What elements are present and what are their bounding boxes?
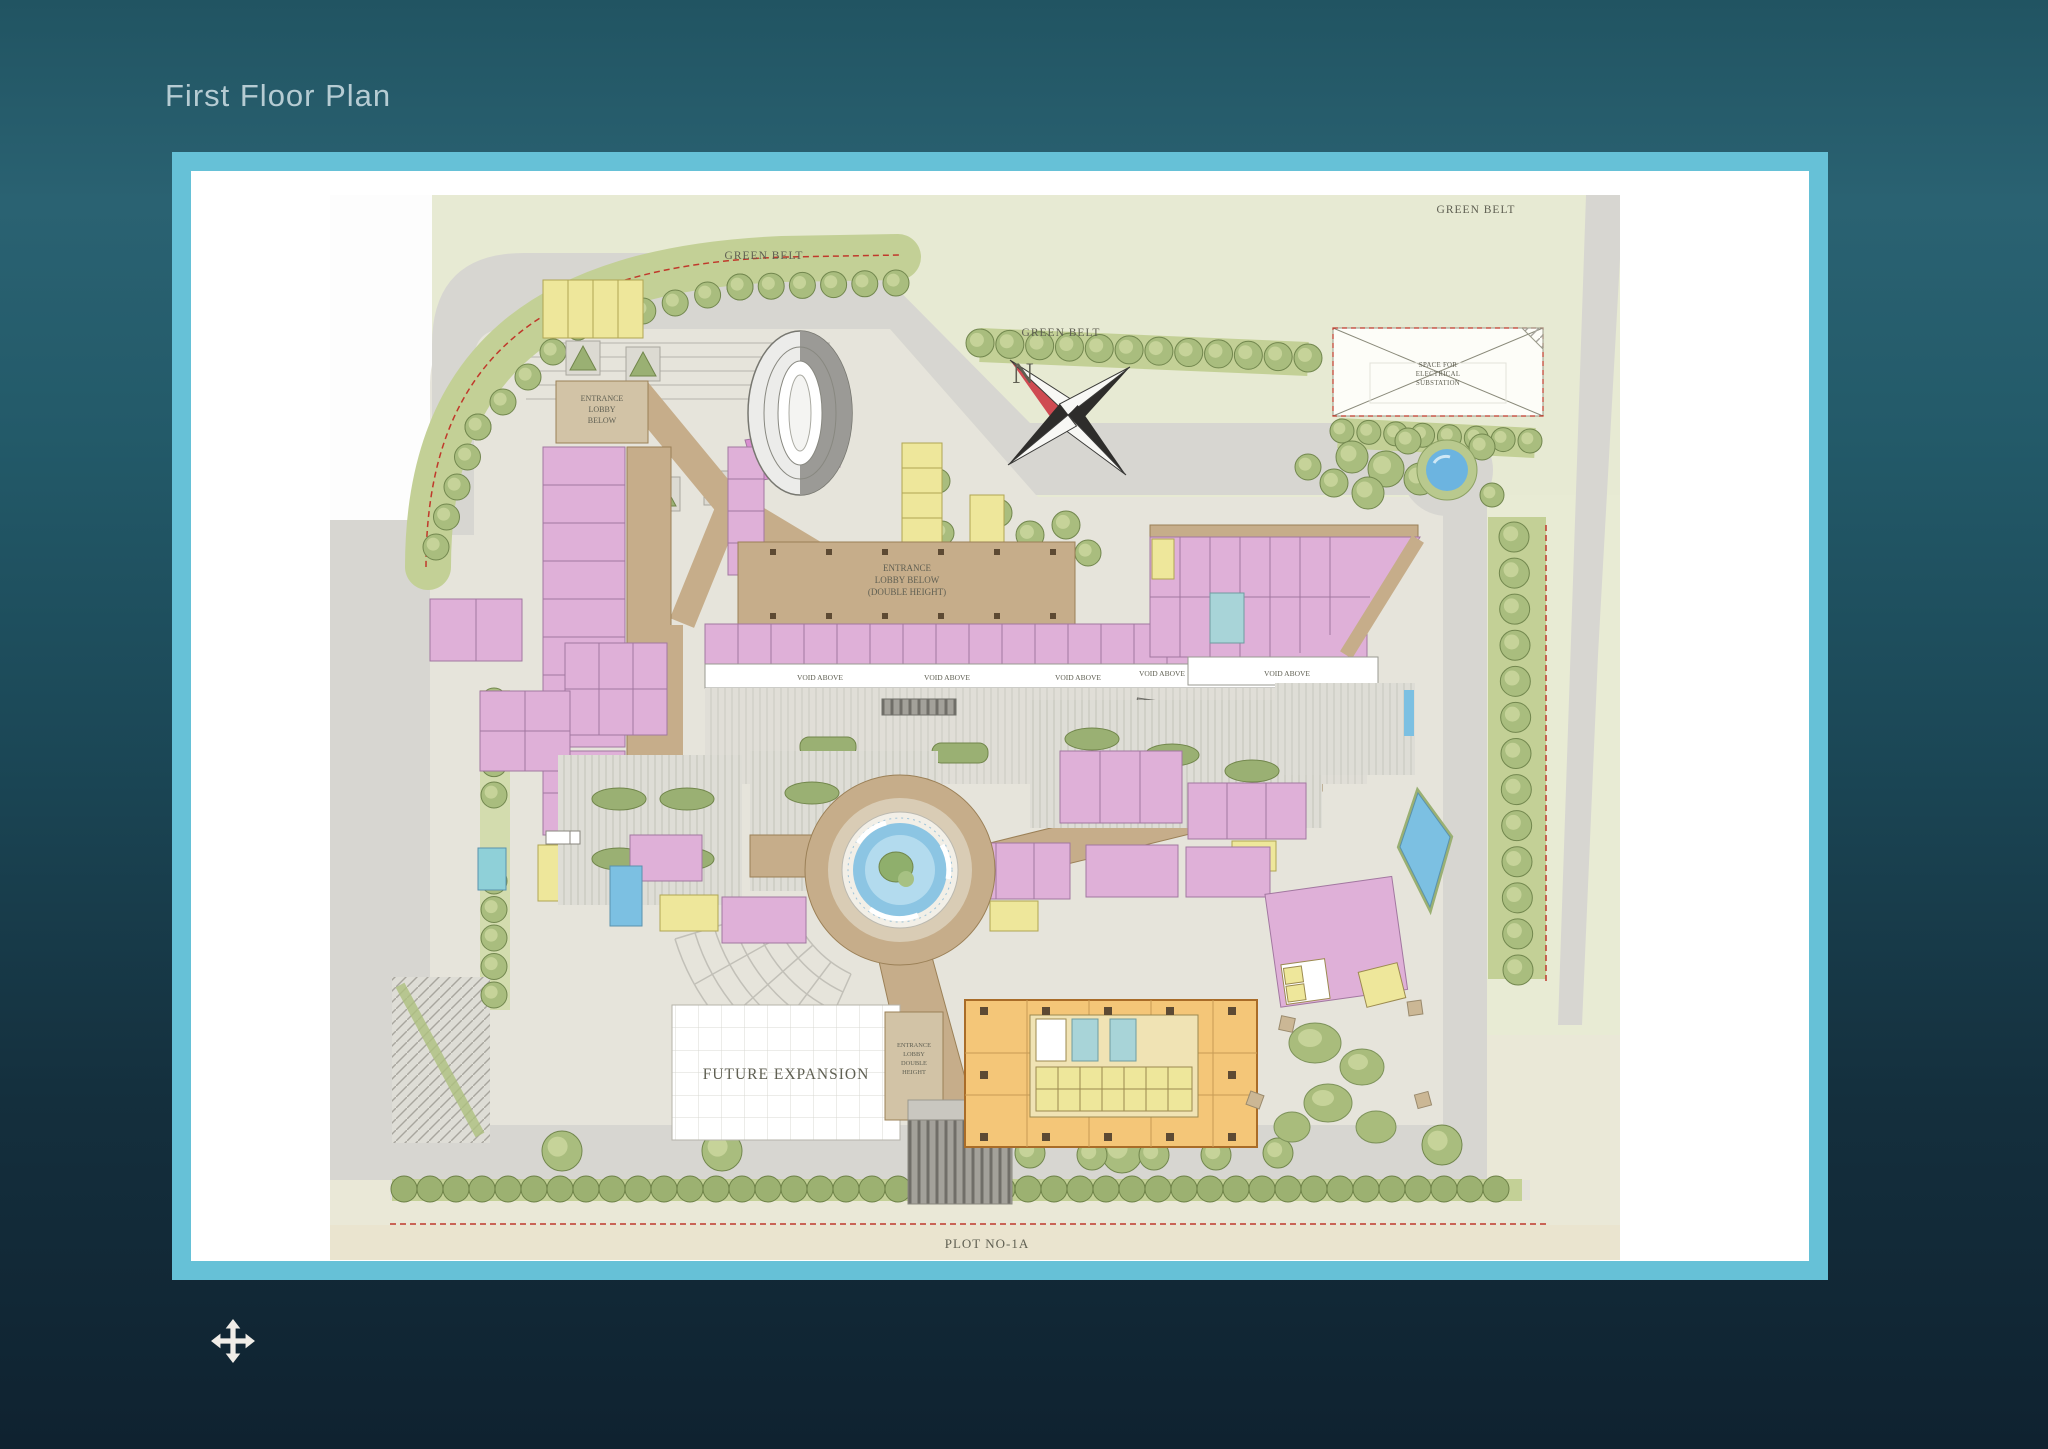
plan-frame: GREEN BELT GREEN BELT GREEN BELT N SPACE… bbox=[172, 152, 1828, 1280]
central-fountain bbox=[805, 775, 995, 965]
future-expansion-label: FUTURE EXPANSION bbox=[703, 1066, 870, 1083]
green-belt-label-left: GREEN BELT bbox=[725, 250, 804, 262]
lobby-tower-label-3: DOUBLE bbox=[901, 1060, 927, 1067]
void-above-label-4: VOID ABOVE bbox=[1139, 669, 1185, 678]
floor-plan-drawing: GREEN BELT GREEN BELT GREEN BELT N SPACE… bbox=[330, 195, 1620, 1260]
north-label: N bbox=[1012, 357, 1034, 390]
void-above-label-1: VOID ABOVE bbox=[797, 673, 843, 682]
lobby-center-label-1: ENTRANCE bbox=[883, 563, 931, 573]
substation-label-3: SUBSTATION bbox=[1416, 380, 1460, 387]
spiral-ramp bbox=[748, 331, 852, 495]
void-above-label-3: VOID ABOVE bbox=[1055, 673, 1101, 682]
lobby-center-label-3: (DOUBLE HEIGHT) bbox=[868, 587, 946, 597]
plan-slide[interactable]: GREEN BELT GREEN BELT GREEN BELT N SPACE… bbox=[191, 171, 1809, 1261]
lobby-left-label-2: LOBBY bbox=[588, 405, 615, 414]
green-belt-label-center: GREEN BELT bbox=[1022, 327, 1101, 339]
page-title: First Floor Plan bbox=[165, 78, 391, 114]
lobby-left-label-3: BELOW bbox=[588, 416, 617, 425]
void-above-label-5: VOID ABOVE bbox=[1264, 669, 1310, 678]
lobby-left-label-1: ENTRANCE bbox=[581, 394, 624, 403]
side-pool bbox=[610, 866, 642, 926]
lobby-tower-label-4: HEIGHT bbox=[902, 1069, 926, 1076]
green-belt-label-right: GREEN BELT bbox=[1437, 204, 1516, 216]
office-tower-block bbox=[965, 1000, 1257, 1147]
vehicle bbox=[546, 831, 580, 844]
lobby-tower-label-1: ENTRANCE bbox=[897, 1042, 931, 1049]
substation-label-2: ELECTRICAL bbox=[1416, 371, 1461, 378]
void-above-label-2: VOID ABOVE bbox=[924, 673, 970, 682]
lobby-tower-label-2: LOBBY bbox=[903, 1051, 925, 1058]
substation-label-1: SPACE FOR bbox=[1419, 362, 1457, 369]
plot-number-label: PLOT NO-1A bbox=[945, 1236, 1030, 1251]
lobby-center-label-2: LOBBY BELOW bbox=[875, 575, 940, 585]
pan-move-icon bbox=[210, 1318, 256, 1364]
